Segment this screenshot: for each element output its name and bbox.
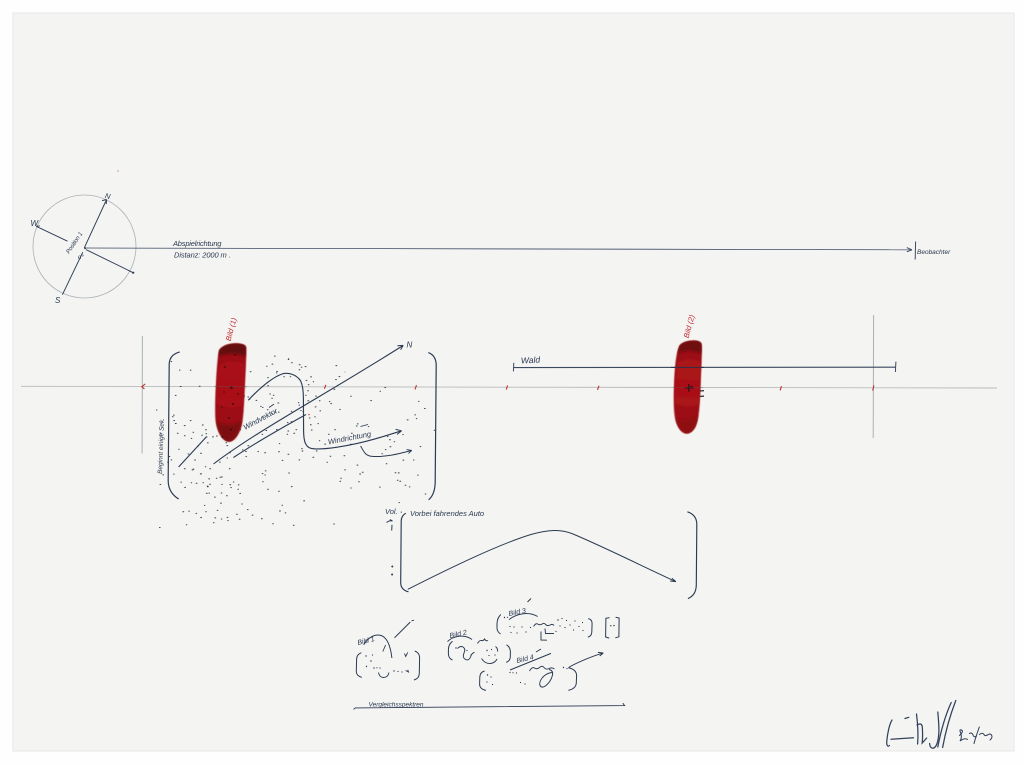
- svg-text:Wald: Wald: [521, 354, 541, 365]
- svg-text:Vol.: Vol.: [385, 507, 398, 516]
- svg-text:S: S: [55, 296, 61, 305]
- svg-text:Beobachter: Beobachter: [917, 249, 951, 256]
- svg-text:Vorbei fahrendes Auto: Vorbei fahrendes Auto: [410, 509, 484, 518]
- svg-text:Distanz: 2000 m .: Distanz: 2000 m .: [174, 251, 231, 260]
- svg-text:Abspielrichtung: Abspielrichtung: [172, 239, 222, 248]
- svg-text:α°: α°: [78, 255, 84, 261]
- svg-text:N: N: [407, 341, 413, 350]
